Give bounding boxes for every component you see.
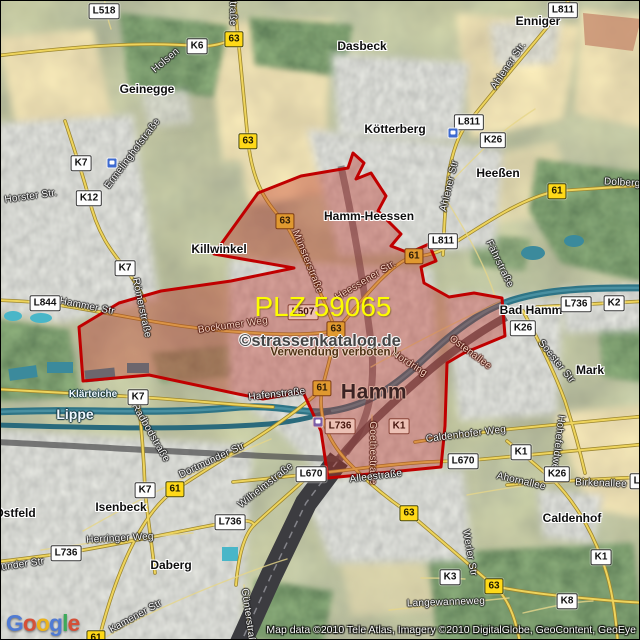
street-label-ostenallee: Ostenallee bbox=[447, 334, 493, 372]
road-badge-l736: L736 bbox=[325, 418, 356, 434]
street-label-caldenhofer-weg: Caldenhofer Weg bbox=[425, 425, 506, 445]
road-badge-l844: L844 bbox=[30, 295, 61, 311]
street-label-ahlener-str: Ahlener Str. bbox=[490, 41, 529, 92]
place-label-ostfeld: Ostfeld bbox=[0, 507, 36, 519]
road-badge-k2: K2 bbox=[604, 295, 625, 311]
train-glyph bbox=[110, 161, 115, 165]
road-badge-k26: K26 bbox=[544, 466, 570, 482]
road-badge-k12: K12 bbox=[76, 190, 102, 206]
road-badge-l811: L811 bbox=[428, 233, 458, 249]
road-badge-k7: K7 bbox=[71, 155, 92, 171]
road-badge-63: 63 bbox=[399, 505, 418, 521]
street-label-soester-str: Soester Str bbox=[536, 339, 577, 386]
road-badge-k3: K3 bbox=[440, 569, 461, 585]
place-label-geinegge: Geinegge bbox=[120, 83, 175, 95]
street-label-hammer-str: Hammer Str bbox=[59, 297, 116, 317]
street-label-radbodstra-e: Radbodstraße bbox=[129, 402, 171, 464]
road-badge-l736: L736 bbox=[561, 296, 592, 312]
road-badge-l811: L811 bbox=[454, 114, 484, 130]
place-label-hamm-heessen: Hamm-Heessen bbox=[324, 210, 414, 222]
road-badge-k26: K26 bbox=[480, 132, 506, 148]
street-label-stra-e: straße bbox=[227, 0, 237, 26]
road-badge-61: 61 bbox=[404, 248, 423, 264]
place-label-dasbeck: Dasbeck bbox=[337, 40, 386, 52]
train-glyph bbox=[316, 420, 321, 424]
road-badge-l736: L736 bbox=[51, 545, 82, 561]
street-label-kamener-str: Kamener Str bbox=[108, 598, 164, 635]
street-label-m-nsterstra-e: Münsterstraße bbox=[290, 229, 324, 295]
road-badge-k7: K7 bbox=[128, 389, 149, 405]
road-badge-63: 63 bbox=[238, 133, 257, 149]
road-badge-l736: L736 bbox=[630, 473, 640, 489]
water-label-kl-rteiche: Klärteiche bbox=[69, 390, 117, 400]
road-badge-61: 61 bbox=[312, 380, 331, 396]
road-badge-61: 61 bbox=[165, 481, 184, 497]
road-badge-k1: K1 bbox=[591, 549, 612, 565]
road-badge-k8: K8 bbox=[557, 593, 578, 609]
water-label-lippe: Lippe bbox=[56, 407, 93, 421]
place-label-isenbeck: Isenbeck bbox=[95, 501, 146, 513]
street-label-ermelinghofstra-e: Ermelinghofstraße bbox=[103, 117, 162, 191]
road-badge-63: 63 bbox=[224, 31, 243, 47]
place-label-killwinkel: Killwinkel bbox=[191, 243, 246, 255]
road-badge-l518: L518 bbox=[89, 3, 120, 19]
street-label-r-merstra-e: Römerstraße bbox=[130, 277, 152, 338]
road-badge-k1: K1 bbox=[511, 444, 532, 460]
road-badge-l670: L670 bbox=[448, 453, 479, 469]
plz-area-title: PLZ 59065 bbox=[255, 291, 392, 323]
place-label-mark: Mark bbox=[576, 364, 604, 376]
google-logo-letter: g bbox=[49, 610, 62, 636]
street-label-f-hrstra-e: Fährstraße bbox=[483, 239, 514, 289]
road-badge-l811: L811 bbox=[548, 2, 578, 18]
road-badge-61: 61 bbox=[547, 183, 566, 199]
street-label-wilhelmstra-e: Wilhelmstraße bbox=[237, 462, 296, 511]
map-canvas[interactable]: L51863K6L81163L811K26K761K1263L81161K7L8… bbox=[0, 0, 640, 640]
street-label-g-nterstra-e: Günterstraße bbox=[239, 588, 257, 640]
road-badge-k7: K7 bbox=[115, 260, 136, 276]
map-attribution: Map data ©2010 Tele Atlas, Imagery ©2010… bbox=[266, 624, 636, 637]
street-label-herringer-weg: Herringer Weg bbox=[86, 532, 154, 546]
city-label-hamm: Hamm bbox=[341, 382, 407, 403]
street-label-dortmunder-str: Dortmunder Str bbox=[178, 441, 247, 480]
google-logo[interactable]: Google bbox=[6, 612, 79, 635]
transit-station-icon[interactable] bbox=[107, 158, 118, 169]
street-label-ahornallee: Ahornallee bbox=[496, 472, 547, 493]
road-badge-l670: L670 bbox=[296, 466, 327, 482]
watermark-notice: Verwendung verboten ! bbox=[270, 347, 397, 359]
street-label-werler-str: Werler Str bbox=[460, 529, 478, 577]
street-label-holsen: Holsen bbox=[150, 47, 181, 75]
street-label-dolberger-str: Dolberger Str bbox=[604, 177, 640, 190]
place-label-hee-en: Heeßen bbox=[476, 167, 519, 179]
transit-station-icon[interactable] bbox=[448, 128, 459, 139]
train-glyph bbox=[451, 131, 456, 135]
road-badge-63: 63 bbox=[484, 578, 503, 594]
street-label-hafenstra-e: Hafenstraße bbox=[248, 387, 306, 403]
place-label-bad-hamm: Bad Hamm bbox=[500, 304, 563, 316]
road-badge-k1: K1 bbox=[389, 418, 410, 434]
street-label-birkenallee: Birkenallee bbox=[575, 478, 627, 490]
street-label-dortmunder-str: Dortmunder Str bbox=[0, 557, 45, 577]
street-label-ahlener-str: Ahlener Str bbox=[439, 159, 460, 212]
google-logo-letter: e bbox=[67, 610, 79, 636]
road-badge-k6: K6 bbox=[187, 38, 208, 54]
transit-station-icon[interactable] bbox=[313, 417, 324, 428]
street-label-horster-str: Horster Str. bbox=[4, 188, 58, 205]
place-label-daberg: Daberg bbox=[150, 559, 191, 571]
google-logo-letter: o bbox=[36, 610, 49, 636]
road-badge-k7: K7 bbox=[135, 482, 156, 498]
road-badge-k26: K26 bbox=[510, 320, 536, 336]
google-logo-letter: G bbox=[6, 610, 23, 636]
road-badge-63: 63 bbox=[275, 213, 294, 229]
road-badge-l736: L736 bbox=[215, 514, 246, 530]
place-label-k-tterberg: Kötterberg bbox=[364, 123, 425, 135]
road-badge-61: 61 bbox=[86, 630, 105, 640]
place-label-caldenhof: Caldenhof bbox=[543, 512, 602, 524]
google-logo-letter: o bbox=[23, 610, 36, 636]
street-label-langewanneweg: Langewanneweg bbox=[407, 597, 486, 610]
